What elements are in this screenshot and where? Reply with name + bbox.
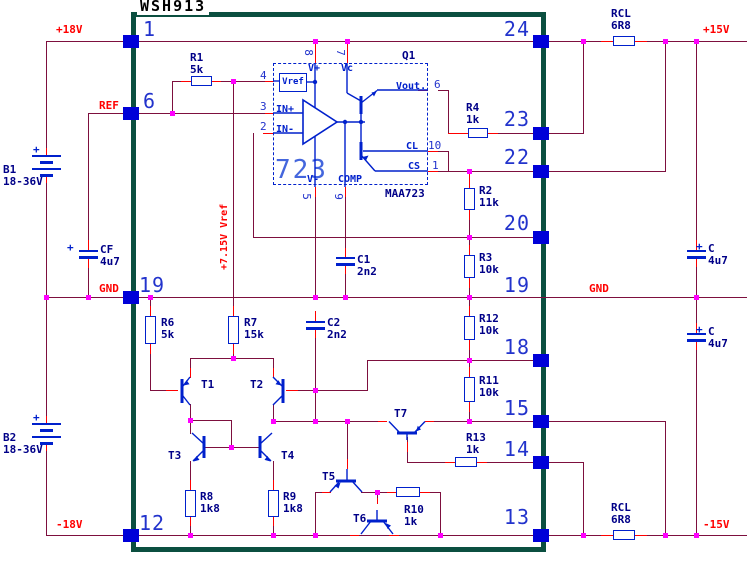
junction-dot [375, 490, 380, 495]
rcl-bot-val: 6R8 [611, 514, 631, 526]
resistor-r8 [185, 490, 196, 517]
c-neg-val: 4u7 [708, 338, 728, 350]
junction-dot [467, 419, 472, 424]
label-minus18v: -18V [56, 519, 83, 531]
junction-dot [467, 235, 472, 240]
pin-number-1: 1 [143, 19, 156, 39]
r8-val: 1k8 [200, 503, 220, 515]
c-pos-val: 4u7 [708, 255, 728, 267]
b1-label: B118-36V [3, 164, 43, 188]
junction-dot [345, 419, 350, 424]
junction-dot [663, 533, 668, 538]
capacitor-cf [79, 256, 98, 259]
r10-label: R101k [404, 504, 424, 528]
r2-label: R211k [479, 185, 499, 209]
vref-block: Vref [279, 73, 307, 92]
pin-number-20: 20 [500, 213, 530, 233]
ic-pin-3: 3 [260, 101, 267, 112]
pad-pin-1[interactable] [123, 35, 139, 48]
junction-dot [86, 295, 91, 300]
resistor-r13 [455, 457, 477, 467]
junction-dot [188, 418, 193, 423]
r9-label: R91k8 [283, 491, 303, 515]
pin-number-6: 6 [143, 91, 156, 111]
pin-number-15: 15 [500, 398, 530, 418]
r4-val: 1k [466, 114, 479, 126]
ic-comp-label: COMP [338, 175, 362, 185]
t6-label: T6 [353, 513, 366, 525]
r4-label: R41k [466, 102, 479, 126]
label-ref: REF [99, 100, 119, 112]
ic-vc-label: Vc [341, 64, 353, 74]
pin-number-22: 22 [500, 147, 530, 167]
pin-number-13: 13 [500, 507, 530, 527]
resistor-r7 [228, 316, 239, 344]
pin-number-24: 24 [500, 19, 530, 39]
cf-plus-sign: + [67, 243, 74, 253]
ic-pin-9: 9 [333, 193, 344, 200]
pad-pin-20[interactable] [533, 231, 549, 244]
b2-plus-sign: + [33, 413, 40, 423]
pad-pin-18[interactable] [533, 354, 549, 367]
junction-dot [694, 39, 699, 44]
junction-dot [188, 533, 193, 538]
label-gnd-right: GND [589, 283, 609, 295]
c-pos-plus-sign: + [696, 242, 703, 252]
junction-dot [581, 533, 586, 538]
junction-dot [170, 111, 175, 116]
junction-dot [44, 295, 49, 300]
junction-dot [231, 356, 236, 361]
rcl-bot-label: RCL6R8 [611, 502, 631, 526]
r3-label: R310k [479, 252, 499, 276]
junction-dot [694, 295, 699, 300]
capacitor-c1 [336, 263, 355, 266]
t5-label: T5 [322, 471, 335, 483]
pad-pin-6[interactable] [123, 107, 139, 120]
t4-label: T4 [281, 450, 294, 462]
junction-dot [694, 533, 699, 538]
resistor-r9 [268, 490, 279, 517]
junction-dot [313, 295, 318, 300]
ic-pin-5: 5 [301, 193, 312, 200]
ic-pin-1: 1 [432, 160, 439, 171]
module-title: WSH913 [137, 0, 209, 15]
c-pos-label: C4u7 [708, 243, 728, 267]
ic-inp-label: IN+ [276, 105, 294, 115]
ic-pin-2: 2 [260, 121, 267, 132]
c2-label: C22n2 [327, 317, 347, 341]
pad-pin-14[interactable] [533, 456, 549, 469]
ic-pin-4: 4 [260, 70, 267, 81]
junction-dot [663, 39, 668, 44]
ic-pin-8: 8 [303, 49, 314, 56]
junction-dot [313, 419, 318, 424]
pin-number-18: 18 [500, 337, 530, 357]
junction-dot [467, 169, 472, 174]
t1-label: T1 [201, 379, 214, 391]
t7-label: T7 [394, 408, 407, 420]
t2-label: T2 [250, 379, 263, 391]
junction-dot [313, 39, 318, 44]
rcl-top-label: RCL6R8 [611, 8, 631, 32]
pin-number-12: 12 [139, 513, 165, 533]
r12-label: R1210k [479, 313, 499, 337]
junction-dot [313, 388, 318, 393]
pin-number-14: 14 [500, 439, 530, 459]
junction-dot [438, 533, 443, 538]
c1-val: 2n2 [357, 266, 377, 278]
capacitor-c2 [306, 321, 325, 323]
resistor-r4 [468, 128, 488, 138]
ic-vout-label: Vout. [396, 82, 426, 92]
ic-cl-label: CL [406, 142, 418, 152]
r1-label: R15k [190, 52, 203, 76]
resistor-r3 [464, 255, 475, 278]
b1-val: 18-36V [3, 176, 43, 188]
r8-label: R81k8 [200, 491, 220, 515]
schematic-canvas: WSH913 [0, 0, 747, 567]
capacitor-c-pos [687, 256, 706, 259]
c-neg-label: C4u7 [708, 326, 728, 350]
r9-val: 1k8 [283, 503, 303, 515]
capacitor-c2 [306, 327, 325, 330]
resistor-rcl-bottom [613, 530, 635, 540]
resistor-r1 [191, 76, 212, 86]
resistor-rcl-top [613, 36, 635, 46]
junction-dot [343, 295, 348, 300]
c2-val: 2n2 [327, 329, 347, 341]
resistor-r10 [396, 487, 420, 497]
junction-dot [467, 358, 472, 363]
ic-pin-7: 7 [335, 49, 346, 56]
r6-val: 5k [161, 329, 174, 341]
ic-pin-6: 6 [434, 79, 441, 90]
junction-dot [467, 295, 472, 300]
junction-dot [581, 39, 586, 44]
ic-inn-label: IN- [276, 125, 294, 135]
resistor-r6 [145, 316, 156, 344]
cf-label: CF4u7 [100, 244, 120, 268]
rcl-top-val: 6R8 [611, 20, 631, 32]
r10-val: 1k [404, 516, 424, 528]
ic-pin-10: 10 [428, 140, 441, 151]
q1-label: Q1 [402, 50, 415, 62]
label-gnd-left: GND [99, 283, 119, 295]
cf-val: 4u7 [100, 256, 120, 268]
capacitor-c-neg [687, 339, 706, 342]
pin-number-19-right: 19 [500, 275, 530, 295]
pad-pin-24[interactable] [533, 35, 549, 48]
label-plus18v: +18V [56, 24, 83, 36]
r2-val: 11k [479, 197, 499, 209]
r6-label: R65k [161, 317, 174, 341]
ic-vplus-label: V+ [308, 64, 320, 74]
pad-pin-13[interactable] [533, 529, 549, 542]
b1-plus-sign: + [33, 145, 40, 155]
ic-vminus-label: V- [307, 175, 319, 185]
capacitor-c1 [336, 257, 355, 259]
ic-cs-label: CS [408, 162, 420, 172]
resistor-r11 [464, 377, 475, 402]
capacitor-cf [79, 250, 98, 252]
r13-val: 1k [466, 444, 486, 456]
label-plus15v: +15V [703, 24, 730, 36]
r3-val: 10k [479, 264, 499, 276]
pad-pin-22[interactable] [533, 165, 549, 178]
junction-dot [271, 533, 276, 538]
r7-val: 15k [244, 329, 264, 341]
junction-dot [271, 419, 276, 424]
c1-label: C12n2 [357, 254, 377, 278]
pad-pin-15[interactable] [533, 415, 549, 428]
pin-number-19-left: 19 [139, 275, 165, 295]
pin-number-23: 23 [500, 109, 530, 129]
r12-val: 10k [479, 325, 499, 337]
r1-val: 5k [190, 64, 203, 76]
t3-label: T3 [168, 450, 181, 462]
b2-label: B218-36V [3, 432, 43, 456]
r13-label: R131k [466, 432, 486, 456]
pad-pin-12[interactable] [123, 529, 139, 542]
maa723-label: MAA723 [385, 188, 425, 200]
junction-dot [345, 39, 350, 44]
resistor-r2 [464, 188, 475, 210]
resistor-r12 [464, 316, 475, 340]
junction-dot [229, 445, 234, 450]
b2-val: 18-36V [3, 444, 43, 456]
c-neg-plus-sign: + [696, 325, 703, 335]
r11-label: R1110k [479, 375, 499, 399]
r7-label: R715k [244, 317, 264, 341]
label-vref-rail: +7.15V Vref [219, 198, 231, 270]
junction-dot [313, 533, 318, 538]
label-minus15v: -15V [703, 519, 730, 531]
pad-pin-19[interactable] [123, 291, 139, 304]
pad-pin-23[interactable] [533, 127, 549, 140]
r11-val: 10k [479, 387, 499, 399]
junction-dot [231, 79, 236, 84]
